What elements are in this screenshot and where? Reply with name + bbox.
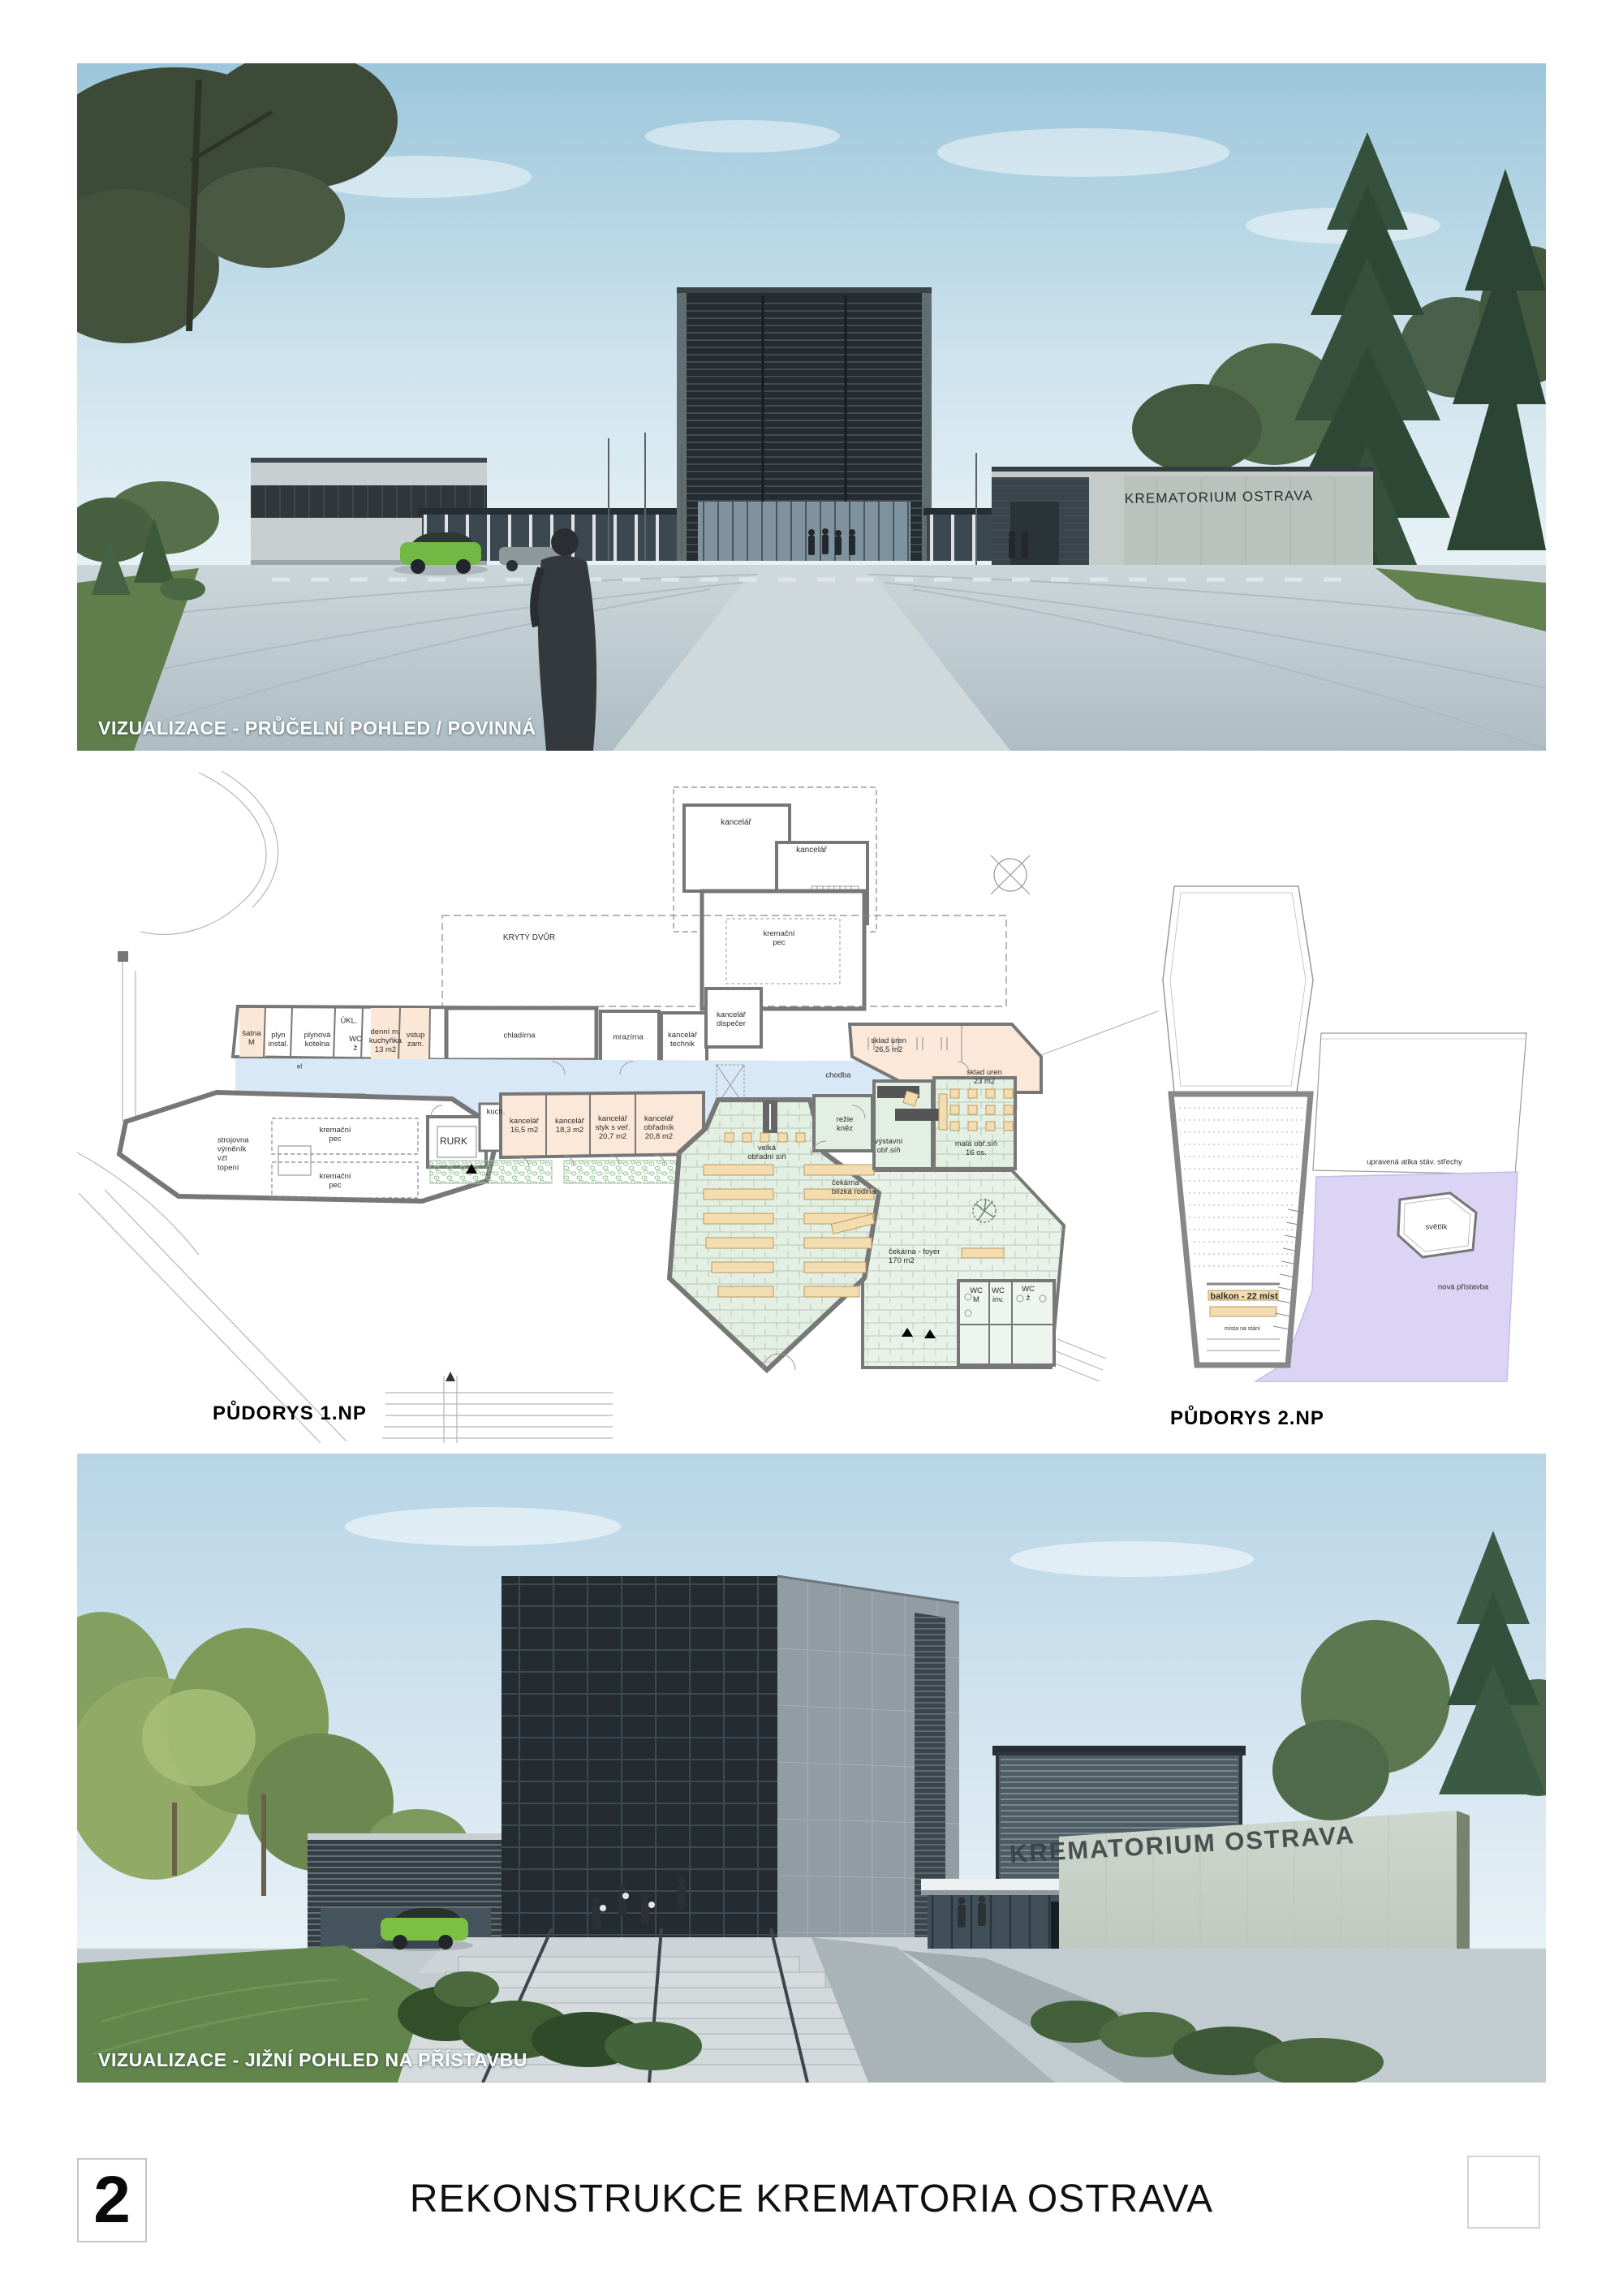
survey-marker-icon	[991, 855, 1030, 894]
front-view-rendering: KREMATORIUM OSTRAVA	[77, 63, 1546, 751]
board-title: REKONSTRUKCE KREMATORIA OSTRAVA	[0, 2177, 1623, 2221]
viz-top-caption: VIZUALIZACE - PRŮČELNÍ POHLED / POVINNÁ	[98, 717, 536, 739]
visualization-front-view: KREMATORIUM OSTRAVA	[77, 63, 1546, 751]
plan-1np	[119, 787, 1064, 1370]
floor-plans-drawing	[77, 771, 1546, 1445]
stamp-box	[1467, 2156, 1540, 2229]
presentation-board: KREMATORIUM OSTRAVA	[0, 0, 1623, 2296]
building-sign: KREMATORIUM OSTRAVA	[1125, 488, 1313, 506]
entrance-colonnade-right	[923, 508, 995, 561]
plan2-title: PŮDORYS 2.NP	[1170, 1407, 1324, 1430]
plan-2np	[1163, 886, 1526, 1381]
main-tower	[677, 287, 932, 561]
south-view-rendering: KREMATORIUM OSTRAVA	[77, 1454, 1546, 2083]
visualization-south-view: KREMATORIUM OSTRAVA	[77, 1454, 1546, 2083]
plan1-title: PŮDORYS 1.NP	[213, 1402, 367, 1425]
green-car	[400, 542, 481, 565]
viz-bottom-caption: VIZUALIZACE - JIŽNÍ POHLED NA PŘÍSTAVBU	[98, 2049, 527, 2071]
right-wing-building: KREMATORIUM OSTRAVA	[992, 467, 1373, 565]
main-cube	[502, 1576, 959, 1997]
floor-plans: kancelářkancelářkremační pecKRYTÝ DVŮRša…	[77, 771, 1546, 1445]
